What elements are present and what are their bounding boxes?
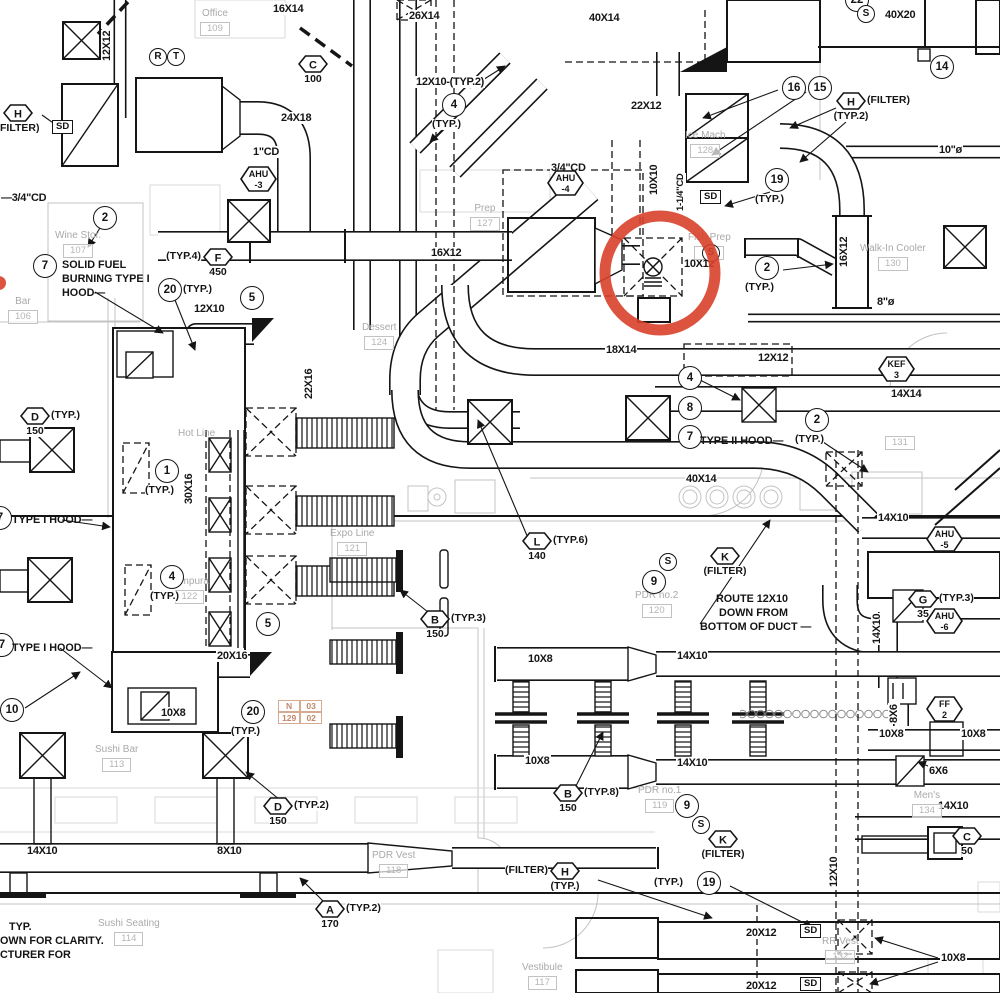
- hvac-plan-screenshot: 16X1426X1440X1440X2012X1212X10-(TYP.2)22…: [0, 0, 1000, 993]
- plan-linework: [0, 0, 1000, 993]
